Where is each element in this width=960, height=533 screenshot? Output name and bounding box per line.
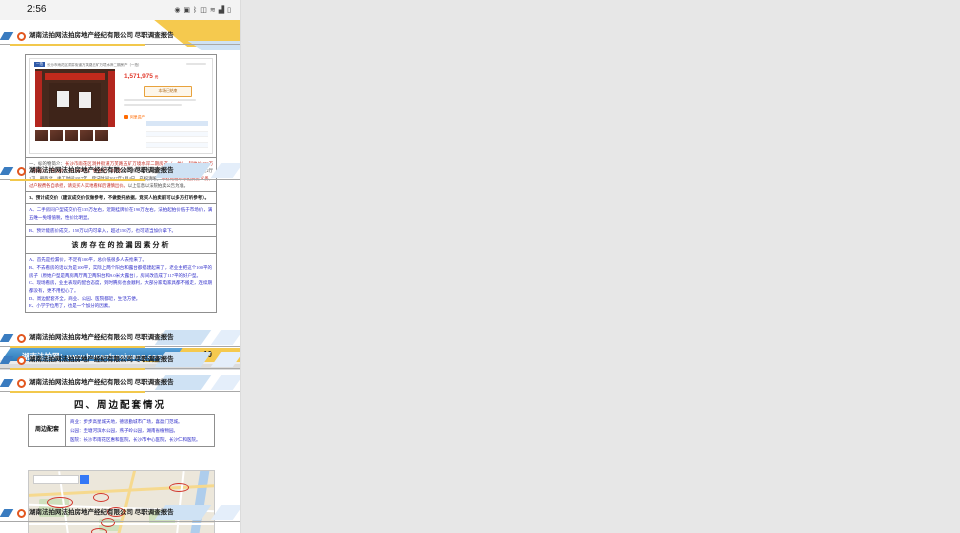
header-deco-stripe [211,505,241,520]
poi-circle [169,483,189,492]
poi-circle [91,528,107,533]
section-title: 四、周边配套情况 [0,397,240,411]
surroundings-table: 周边配套 商业：步步高星城天地，德思勤城市广场，喜盈门范城。公园：圭塘河滨水公园… [28,414,215,447]
status-icon: ▯ [227,6,232,14]
header-yellow-rule [10,368,145,370]
bid-record-table [146,121,208,148]
red-couplet-strip [108,71,115,127]
header-rule [0,521,240,522]
header-blue-mark [0,509,13,517]
bargain-analysis-list: A、首先是捡漏价，不足有100平，总价低很多人去抢来了。B、不去看房的话以为是1… [26,253,216,311]
header-title: 湖南法拍网法拍房地产经纪有限公司 尽职调查报告 [29,334,174,342]
surrounding-line: 公园：圭塘河滨水公园，燕子岭公园，湖南省植物园。 [70,426,210,435]
deal-price: 1,571,975 元 [124,73,158,80]
analysis-line: B、不去看房的话以为是100平，实际上两个阳台和露台都搭建起来了，老业主把这个1… [29,264,213,279]
phone-screenshot-4: 2:56 ◉▣ᛒ◫≋▟▯ 湖南法拍网法拍房地产经纪有限公司 尽职调查报告 一拍 … [0,0,241,533]
header-yellow-rule [10,44,145,46]
header-title: 湖南法拍网法拍房地产经纪有限公司 尽职调查报告 [29,32,174,40]
clock: 2:56 [27,4,46,15]
auction-page-screenshot: 一拍 长沙市雨花区洞井街道万芙路五矿万境水岸二期房产（一拍） 1,571,975… [29,58,213,154]
report-header: 湖南法拍网法拍房地产经纪有限公司 尽职调查报告 [0,330,240,347]
analysis-line: A、首先是捡漏价，不足有100平，总价低很多人去抢来了。 [29,256,213,264]
status-icon: ▣ [183,6,191,14]
logo-ring-icon [17,334,26,343]
court-notice-paper [57,91,69,107]
status-icon: ᛒ [193,6,198,14]
red-couplet-strip [35,71,42,127]
info-placeholder [124,104,182,106]
header-deco-stripe [211,330,241,345]
court-notice-paper [79,92,91,108]
map-search-button[interactable] [80,475,89,484]
logo-ring-icon [17,167,26,176]
report-header: 湖南法拍网法拍房地产经纪有限公司 尽职调查报告 [0,375,240,392]
red-banner [45,73,105,80]
header-deco-stripe [211,375,241,390]
header-blue-mark [0,32,13,40]
analysis-line: D、周边配套齐全，商业、公园、医院都近，生活方便。 [29,295,213,303]
report-header: 湖南法拍网法拍房地产经纪有限公司 尽职调查报告 [0,163,240,180]
surrounding-line: 商业：步步高星城天地，德思勤城市广场，喜盈门范城。 [70,417,210,426]
map-screenshot[interactable] [28,470,215,533]
info-placeholder [124,99,196,101]
header-yellow-rule [10,346,145,348]
header-blue-mark [0,379,13,387]
photo-thumbnails[interactable] [35,130,108,141]
estimate-line-a: A、二手房同户型成交价在135万左右，近期挂牌价在190万左右，法拍起拍价低于市… [26,203,216,223]
door-photo[interactable] [35,69,115,127]
report-header: 湖南法拍网法拍房地产经纪有限公司 尽职调查报告 [0,505,240,522]
status-icon: ◉ [174,6,181,14]
header-blue-mark [0,334,13,342]
header-deco-stripe [211,163,241,178]
header-title: 湖南法拍网法拍房地产经纪有限公司 尽职调查报告 [29,356,174,364]
auction-analysis-box: 一拍 长沙市雨花区洞井街道万芙路五矿万境水岸二期房产（一拍） 1,571,975… [25,54,217,313]
map-search-input[interactable] [33,475,79,484]
map-road [28,523,215,525]
header-title: 湖南法拍网法拍房地产经纪有限公司 尽职调查报告 [29,379,174,387]
status-icons: ◉▣ᛒ◫≋▟▯ [174,6,232,14]
analysis-line: E、小学学位用了，也是一个加分的因素。 [29,302,213,310]
header-title: 湖南法拍网法拍房地产经纪有限公司 尽职调查报告 [29,509,174,517]
row-content: 商业：步步高星城天地，德思勤城市广场，喜盈门范城。公园：圭塘河滨水公园，燕子岭公… [66,415,214,446]
poi-circle [93,493,109,502]
logo-ring-icon [17,509,26,518]
header-yellow-rule [10,179,145,181]
auction-tag: 一拍 [34,62,45,67]
header-blue-mark [0,167,13,175]
analysis-line: C、现场看房，业主表现的配合态度，到时腾房也会顺利，大部分家电家具都不搬走，连续… [29,279,213,294]
logo-ring-icon [17,379,26,388]
header-blue-mark [0,356,13,364]
status-bar: 2:56 ◉▣ᛒ◫≋▟▯ [0,0,240,20]
logo-ring-icon [17,32,26,41]
platform-logo: 阿里资产 [124,115,145,121]
auction-ended-button[interactable]: 本场已结束 [144,86,192,97]
toolbar-placeholder [186,63,206,65]
header-title: 湖南法拍网法拍房地产经纪有限公司 尽职调查报告 [29,167,174,175]
table-row: 周边配套 商业：步步高星城天地，德思勤城市广场，喜盈门范城。公园：圭塘河滨水公园… [29,415,214,446]
estimated-price-heading: 3、预计成交价（建议成交价仅做参考，不做委托依据，竞买人拍卖前可以多方打听参考）… [26,191,216,203]
logo-ring-icon [17,356,26,365]
summary-span: 以上信息以法院拍卖公告为准。 [128,183,188,188]
row-label: 周边配套 [29,415,66,446]
estimate-line-b: B、预计能底价成交，150万以内可拿入，超过150万，也可适当加价拿下。 [26,224,216,237]
header-deco-stripe [211,352,241,367]
status-icon: ≋ [210,6,217,14]
header-yellow-rule [10,391,145,393]
auction-title: 长沙市雨花区洞井街道万芙路五矿万境水岸二期房产（一拍） [47,63,192,68]
status-icon: ◫ [200,6,208,14]
status-icon: ▟ [219,6,225,14]
report-header: 湖南法拍网法拍房地产经纪有限公司 尽职调查报告 [0,28,240,45]
bargain-analysis-title: 该房存在的捡漏因素分析 [26,236,216,253]
report-header: 湖南法拍网法拍房地产经纪有限公司 尽职调查报告 [0,352,240,369]
surrounding-line: 医院：长沙市雨花区惠和医院，长沙市中心医院，长沙仁和医院。 [70,435,210,444]
